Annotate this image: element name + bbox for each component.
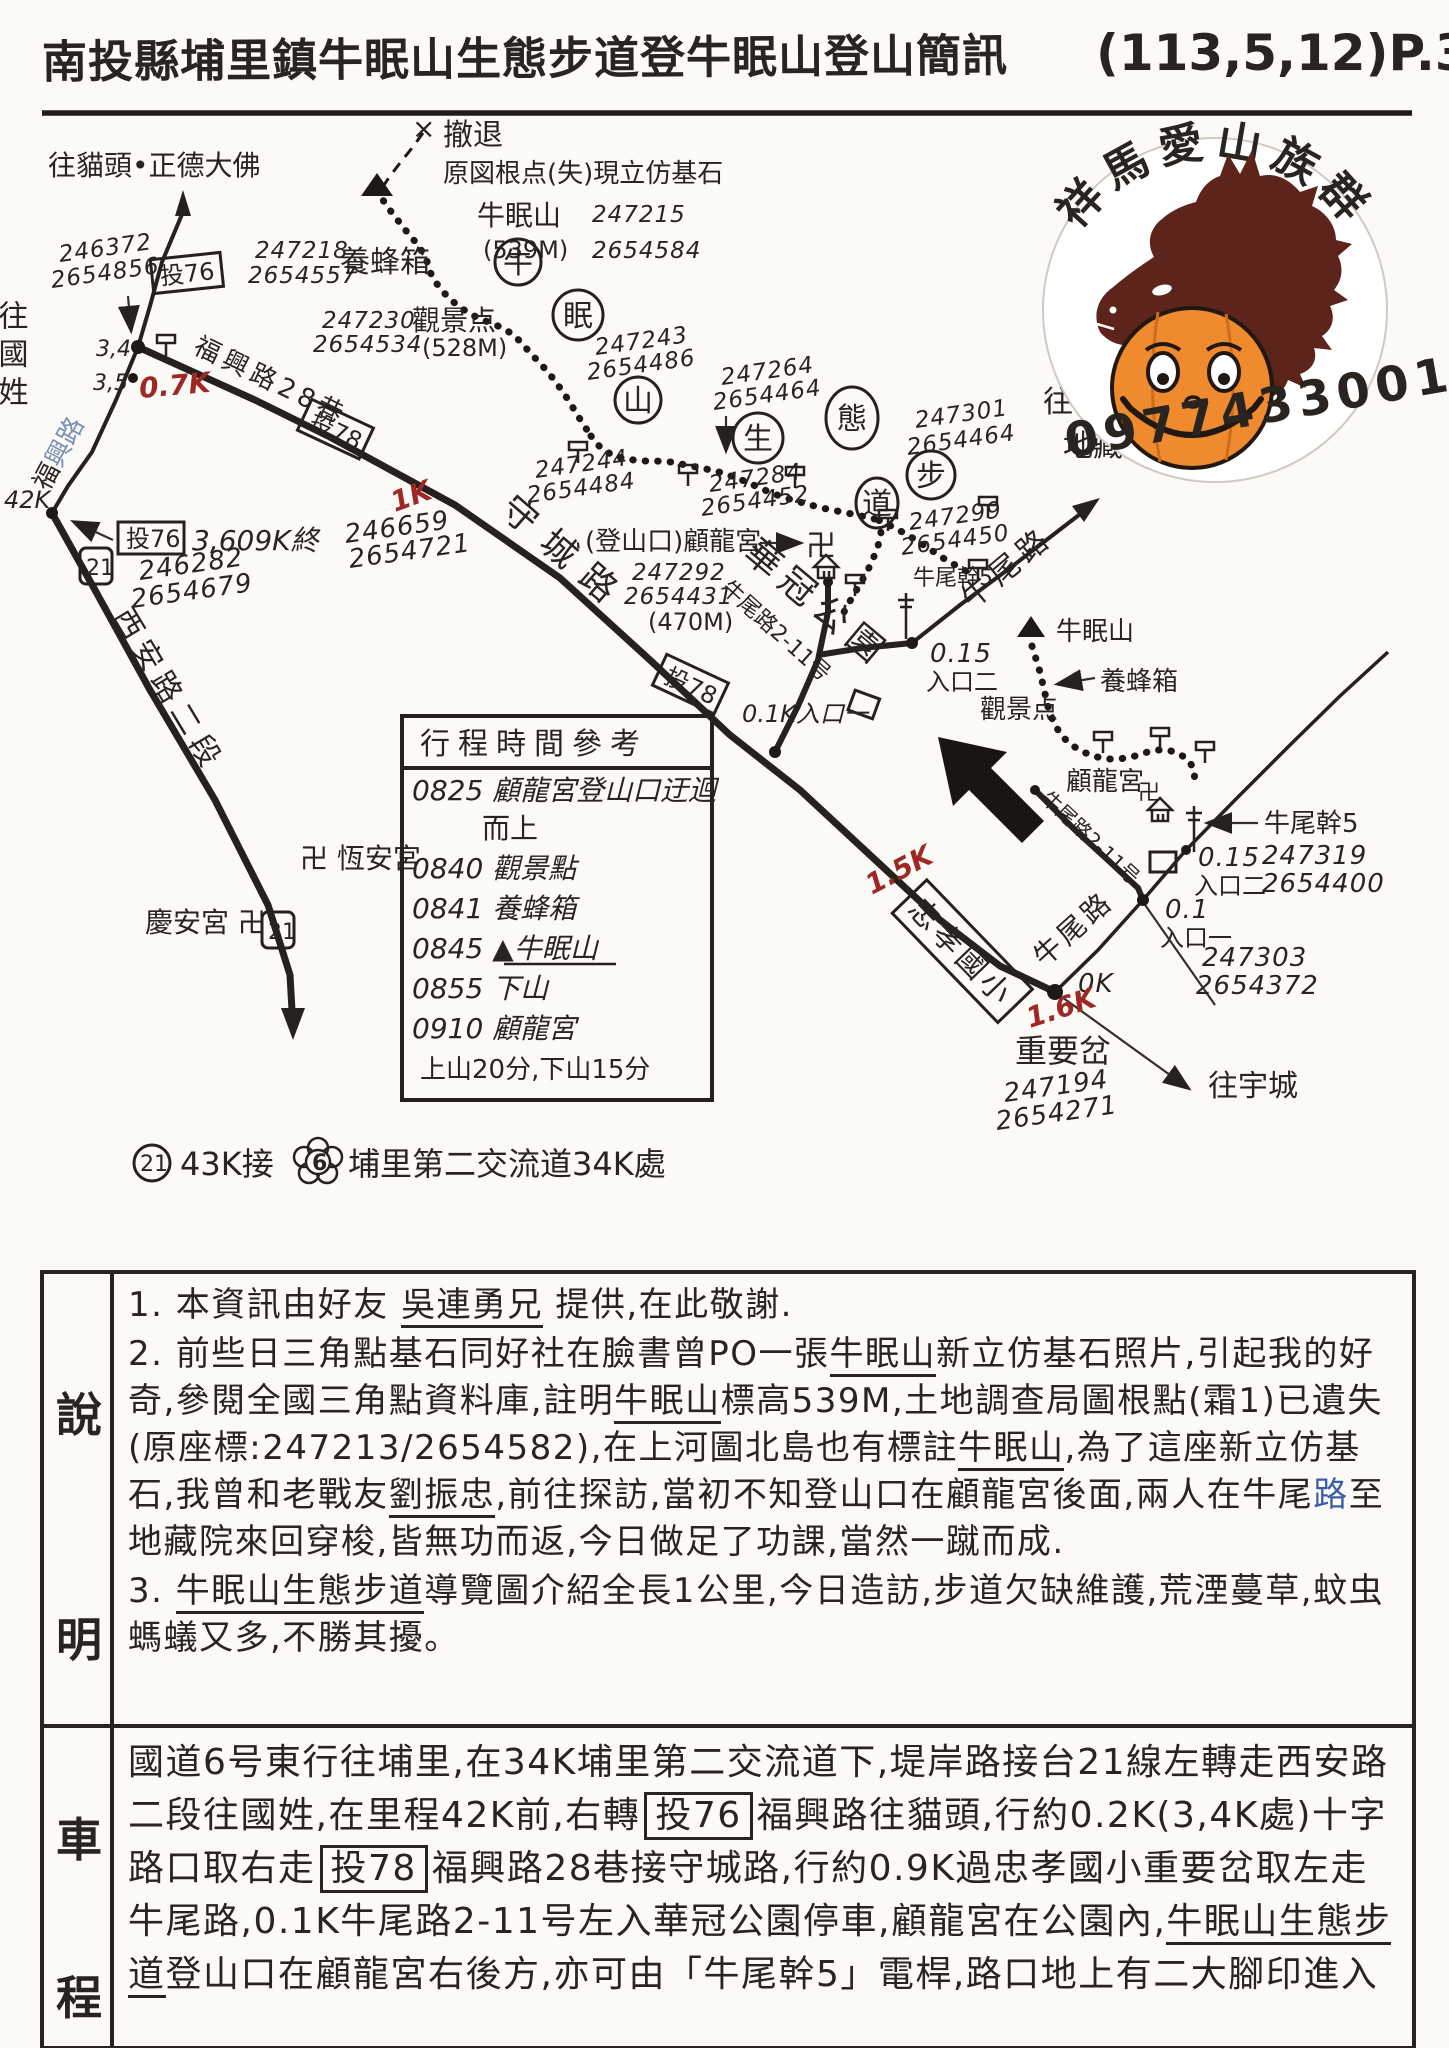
route21-shield-1: 21 (80, 548, 114, 584)
table-row-5: 0855 下山 (412, 972, 550, 1005)
svg-text:忠孝國小: 忠孝國小 (901, 892, 1021, 1014)
power-pole-icon-main (898, 593, 914, 639)
note-item-3: 3. 牛眠山生態步道導覽圖介紹全長1公里,今日造訪,步道欠缺維護,荒湮蔓草,蚊虫… (128, 1568, 1400, 1662)
coord-247292: 247292 (632, 560, 726, 586)
note2-comrade-name: 劉振忠 (389, 1475, 496, 1518)
origin-stone-note: 原図根点(失)現立仿基石 (443, 159, 723, 189)
row-divider (44, 1724, 1412, 1728)
route-content: 國道6号東行往埔里,在34K埔里第二交流道下,堤岸路接台21線左轉走西安路二段往… (128, 1736, 1400, 2003)
junction-dots (46, 340, 1191, 1000)
zhongyaocha-label: 重要岔 (1015, 1032, 1111, 1070)
table-row-7: 上山20分,下山15分 (420, 1055, 650, 1085)
inset-house-box (1150, 852, 1176, 872)
table-row-2: 0840 觀景點 (412, 852, 580, 885)
note-badge-21: 21 (140, 1152, 168, 1177)
inset-summit-triangle (1017, 616, 1045, 637)
route-badge-tou78: 投78 (320, 1845, 428, 1893)
coord-2654584: 2654584 (592, 238, 701, 264)
route-paragraph: 國道6号東行往埔里,在34K埔里第二交流道下,堤岸路接台21線左轉走西安路二段往… (128, 1736, 1400, 2001)
milestone-3.5: 3,5 (93, 371, 128, 396)
notes-label-2: 明 (56, 1604, 102, 1670)
table-row-0: 0825 顧龍宮登山口迂迴 (412, 774, 720, 807)
table-title: 行程時間參考 (420, 727, 648, 762)
coord-247230: 247230 (322, 308, 416, 334)
svg-text:態: 態 (837, 402, 867, 437)
milestone-3.4: 3,4 (96, 337, 131, 362)
svg-text:21: 21 (86, 556, 114, 581)
note2-seg: ,前往探訪,當初不知登山口在顧龍宮後面,兩人在牛尾 (495, 1475, 1313, 1515)
fuxinglu-label: 福興路 (28, 412, 91, 495)
route-label-2: 程 (56, 1962, 102, 2028)
table-row-1: 而上 (482, 812, 538, 845)
coord-2654534: 2654534 (313, 332, 422, 358)
coord-247319: 247319 (1262, 841, 1367, 871)
tou76-sign-top: 投76 (150, 252, 223, 293)
note2-mountain: 牛眠山 (958, 1428, 1065, 1471)
svg-text:牛: 牛 (503, 246, 533, 281)
entrance2-dist-main: 0.15 (930, 639, 992, 669)
to-guoxing-label: 往國姓 (0, 300, 29, 414)
arrow-down-junction (128, 296, 131, 330)
trailhead-label: (登山口)顧龍宮 (585, 527, 761, 557)
club-logo: 祥馬愛山族群 0977433001 (1043, 115, 1449, 482)
note2-mountain: 牛眠山 (614, 1381, 721, 1424)
coord-2654372: 2654372 (1196, 971, 1319, 1001)
svg-text:生: 生 (743, 422, 773, 457)
zhongxiao-school-box: 忠孝國小 (892, 880, 1032, 1023)
notes-box: 說 明 車 程 1. 本資訊由好友 吳連勇兄 提供,在此敬謝. 2. 前些日三角… (40, 1270, 1416, 2048)
summit-triangle-icon (361, 173, 393, 196)
viewpoint-label: 觀景点 (412, 304, 496, 337)
route-label-1: 車 (56, 1804, 102, 1870)
notes-content: 1. 本資訊由好友 吳連勇兄 提供,在此敬謝. 2. 前些日三角點基石同好社在臉… (128, 1282, 1400, 1664)
inset-ent2-dist: 0.15 (1198, 843, 1260, 873)
big-direction-arrow (938, 737, 1044, 843)
inset-niuweilu-label: 牛尾路 (1027, 884, 1120, 973)
km-mark-1.5: 1.5K (860, 837, 940, 901)
route-seg: 登山口在顧龍宮右後方,亦可由「牛尾幹5」電桿,路口地上有二大腳印進入 (166, 1954, 1379, 1995)
coord-247215: 247215 (592, 202, 686, 228)
to-yucheng-label: 往宇城 (1208, 1069, 1298, 1104)
entrance2-label-main: 入口二 (926, 668, 998, 696)
xian-road-label: 西安路二段 (105, 602, 230, 779)
svg-text:21: 21 (268, 920, 296, 945)
milestone-42k: 42K (4, 486, 53, 514)
note-item-1: 1. 本資訊由好友 吳連勇兄 提供,在此敬謝. (128, 1282, 1400, 1329)
inset-gulong-label: 顧龍宮 (1066, 767, 1144, 797)
summit-name: 牛眠山 (477, 199, 561, 232)
hand-drawn-trail-map: × 撤退 往貓頭•正德大佛 246372 2654856 投76 247218 … (0, 0, 1449, 1268)
highway6-shield: 6 (294, 1138, 342, 1183)
entrance1-label-main: 0.1K入口一 (742, 700, 870, 728)
retreat-label: 撤退 (443, 118, 503, 153)
route-badge-tou76: 投76 (644, 1792, 752, 1840)
table-row-3: 0841 養蜂箱 (412, 892, 580, 925)
itinerary-table: 行程時間參考 0825 顧龍宮登山口迂迴 而上 0840 觀景點 0841 養蜂… (402, 716, 720, 1100)
inset-viewpoint-label: 觀景点 (980, 695, 1058, 725)
coord-2654431: 2654431 (624, 584, 733, 610)
notes-label-1: 說 (56, 1379, 102, 1445)
svg-text:投76: 投76 (126, 525, 181, 553)
inset-summit-label: 牛眠山 (1056, 617, 1134, 647)
inset-nwl211-label: 牛尾路2-11号 (1037, 786, 1145, 889)
svg-text:投76: 投76 (159, 257, 216, 291)
coord-247218: 247218 (255, 238, 349, 264)
scanned-newsletter-page: 南投縣埔里鎮牛眠山生態步道登牛眠山登山簡訊 (113,5,12)P.38 (0, 0, 1449, 2048)
note1-text: 1. 本資訊由好友 (128, 1285, 401, 1325)
arrow-road21-south (281, 1008, 305, 1040)
tou78-sign-2: 投78 (652, 654, 728, 714)
note-item-2: 2. 前些日三角點基石同好社在臉書曾PO一張牛眠山新立仿基石照片,引起我的好奇,… (128, 1331, 1400, 1566)
inset-beehive-label: 養蜂箱 (1100, 667, 1178, 697)
note3-num: 3. (128, 1571, 176, 1611)
arrow-tou76-end (74, 522, 113, 540)
gulong-elevation: (470M) (648, 608, 733, 636)
shield-6-number: 6 (312, 1151, 327, 1176)
inset-beehive-arrow (1058, 678, 1095, 684)
inset-nwg5-label: 牛尾幹5 (1264, 809, 1359, 839)
to-maotou-label: 往貓頭•正德大佛 (48, 149, 261, 182)
tou76-sign-end: 投76 (118, 522, 184, 554)
qingan-temple-label: 慶安宮 卍 (145, 906, 266, 939)
note1-text2: 提供,在此敬謝. (543, 1285, 793, 1325)
inset-ent1-dist: 0.1 (1165, 895, 1209, 925)
beehive-label: 養蜂箱 (340, 245, 430, 280)
note-43k: 43K接 (180, 1145, 274, 1183)
arrow-to-maotou (175, 190, 191, 216)
note2-seg: 2. 前些日三角點基石同好社在臉書曾PO一張 (128, 1334, 830, 1374)
note-interchange: 埔里第二交流道34K處 (348, 1145, 666, 1183)
coord-2654400: 2654400 (1262, 869, 1385, 899)
note3-trail-name: 牛眠山生態步道 (176, 1571, 425, 1614)
table-row-4: 0845 ▲牛眠山 (412, 932, 600, 965)
route21-shield-2: 21 (262, 912, 296, 948)
svg-text:步: 步 (916, 459, 946, 494)
note1-friend-name: 吳連勇兄 (401, 1285, 543, 1328)
svg-text:眠: 眠 (563, 299, 593, 334)
note2-blue-correction: 路 (1313, 1475, 1349, 1515)
note2-mountain: 牛眠山 (830, 1334, 937, 1377)
retreat-x-mark: × (412, 112, 435, 145)
km-mark-0.7: 0.7K (138, 366, 214, 405)
interchange-note: 21 43K接 6 埔里第二交流道34K處 (134, 1138, 666, 1183)
viewpoint-elevation: (528M) (422, 334, 507, 362)
svg-text:山: 山 (623, 384, 653, 419)
table-row-6: 0910 顧龍宮 (412, 1012, 580, 1045)
coord-247303: 247303 (1202, 943, 1307, 973)
